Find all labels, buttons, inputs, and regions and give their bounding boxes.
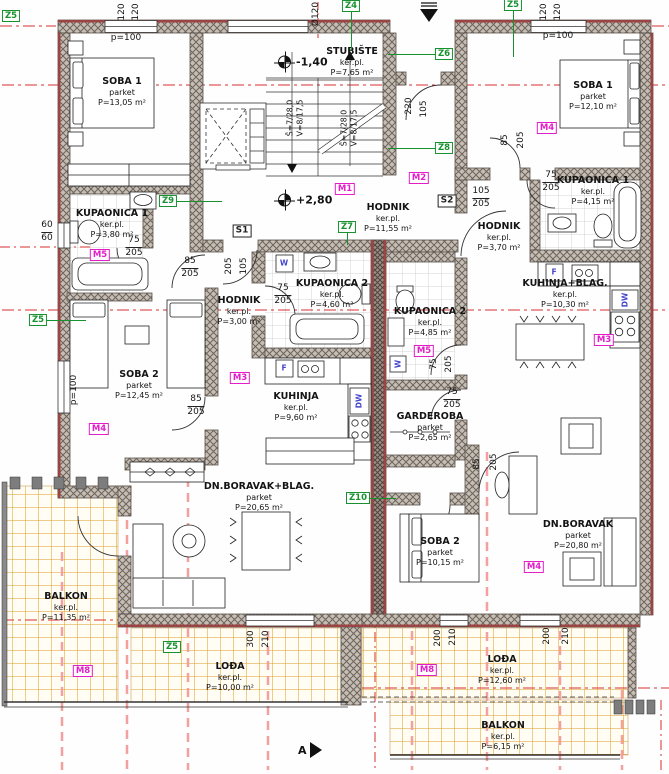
stair-note: V=8/17,5	[350, 110, 359, 147]
room-area: P=13,05 m²	[98, 98, 146, 108]
room-label-kupaonica2-right: KUPAONICA 2ker.pl.P=4,85 m²	[394, 306, 466, 338]
dim-width: 75	[277, 284, 288, 294]
section-letter: A	[298, 744, 307, 757]
dimension-label: 210	[448, 628, 458, 645]
opening-tag-z6: Z6	[435, 48, 453, 60]
section-marker: A	[298, 742, 322, 758]
material-tag-m5: M5	[90, 249, 110, 261]
room-label-balkon-left: BALKONker.pl.P=11,35 m²	[42, 591, 90, 623]
room-area: P=4,15 m²	[557, 197, 629, 207]
material-tag-m3: M3	[230, 372, 250, 384]
dim-width: 60	[41, 221, 52, 231]
room-area: P=11,55 m²	[364, 224, 412, 234]
floor-plan: SOBA 1parketP=13,05 m²KUPAONICA 1ker.pl.…	[0, 0, 669, 774]
stair-note: Š=7/28,0	[340, 110, 349, 146]
dim-width: 75	[128, 236, 139, 246]
dimension-label: 210	[261, 630, 271, 647]
dim-height: 205	[274, 297, 291, 307]
room-name: BALKON	[42, 591, 90, 603]
room-area: P=9,60 m²	[273, 413, 318, 423]
room-name: HODNIK	[478, 221, 521, 233]
room-floor: parket	[569, 92, 617, 102]
dim-height: 60	[41, 234, 52, 244]
material-tag-m5: M5	[414, 345, 434, 357]
tag-leader	[176, 201, 222, 202]
dimension-label: 120	[539, 3, 549, 20]
parapet-note: p=100	[111, 33, 141, 43]
room-area: P=12,60 m²	[478, 676, 526, 686]
dim-height: 205	[181, 270, 198, 280]
room-label-dnevni-left: DN.BORAVAK+BLAG.parketP=20,65 m²	[204, 481, 314, 513]
dim-height: 205	[443, 401, 460, 411]
room-name: KUPAONICA 1	[557, 175, 629, 187]
room-area: P=4,60 m²	[296, 300, 368, 310]
tag-leader	[513, 11, 514, 57]
room-floor: ker.pl.	[557, 187, 629, 197]
room-floor: parket	[204, 493, 314, 503]
room-name: SOBA 1	[98, 76, 146, 88]
room-area: P=10,00 m²	[206, 683, 254, 693]
dim-width: 85	[190, 395, 201, 405]
dimension-label: 85	[500, 134, 510, 145]
opening-tag-z4: Z4	[342, 0, 360, 12]
room-floor: parket	[98, 88, 146, 98]
dimension-label: 120	[131, 3, 141, 20]
room-label-kuhinja-left: KUHINJAker.pl.P=9,60 m²	[273, 391, 318, 423]
room-floor: ker.pl.	[296, 290, 368, 300]
level-marker: +2,80	[278, 194, 332, 207]
apartment-tag-s1: S1	[233, 225, 252, 238]
room-label-dnevni-right: DN.BORAVAKparketP=20,80 m²	[543, 519, 613, 551]
material-tag-m8: M8	[73, 665, 93, 677]
tag-leader	[388, 54, 436, 55]
room-floor: ker.pl.	[218, 307, 261, 317]
room-name: KUPAONICA 2	[394, 306, 466, 318]
room-area: P=10,30 m²	[522, 300, 607, 310]
dimension-label: 85	[472, 458, 482, 469]
room-floor: ker.pl.	[364, 214, 412, 224]
appliance-label: F	[281, 364, 286, 373]
dim-width: 75	[545, 171, 556, 181]
opening-tag-z10: Z10	[346, 492, 370, 504]
material-tag-m1: M1	[335, 183, 355, 195]
parapet-note: p=100	[543, 31, 573, 41]
dimension-label: 205	[489, 453, 499, 470]
room-area: P=20,65 m²	[204, 503, 314, 513]
room-name: SOBA 2	[416, 536, 464, 548]
room-floor: parket	[416, 548, 464, 558]
opening-tag-z5: Z5	[163, 641, 181, 653]
room-label-kupaonica1-right: KUPAONICA 1ker.pl.P=4,15 m²	[557, 175, 629, 207]
room-area: P=6,15 m²	[481, 742, 525, 752]
room-floor: parket	[397, 423, 464, 433]
room-name: LOĐA	[206, 661, 254, 673]
room-name: KUHINJA	[273, 391, 318, 403]
level-value: +2,80	[296, 194, 332, 207]
room-floor: ker.pl.	[42, 603, 90, 613]
room-floor: ker.pl.	[478, 233, 521, 243]
room-name: BALKON	[481, 720, 525, 732]
dimension-label: 75	[429, 358, 439, 369]
room-name: KUPAONICA 1	[76, 208, 148, 220]
opening-tag-z5: Z5	[504, 0, 522, 11]
appliance-label: DW	[355, 394, 364, 409]
room-floor: ker.pl.	[481, 732, 525, 742]
room-floor: ker.pl.	[206, 673, 254, 683]
dimension-label: 205	[224, 257, 234, 274]
room-name: KUPAONICA 2	[296, 278, 368, 290]
dimension-label: 300	[246, 630, 256, 647]
material-tag-m4: M4	[89, 423, 109, 435]
opening-tag-z5: Z5	[29, 314, 47, 326]
room-area: P=20,80 m²	[543, 541, 613, 551]
room-floor: ker.pl.	[522, 290, 607, 300]
door-dimension: 75205	[542, 171, 559, 194]
section-arrow-icon	[310, 742, 322, 758]
room-name: DN.BORAVAK+BLAG.	[204, 481, 314, 493]
dim-width: 75	[446, 388, 457, 398]
room-area: P=12,10 m²	[569, 102, 617, 112]
room-area: P=12,45 m²	[115, 391, 163, 401]
room-label-soba2-right: SOBA 2parketP=10,15 m²	[416, 536, 464, 568]
room-area: P=7,65 m²	[326, 68, 378, 78]
tag-leader	[366, 498, 396, 499]
room-area: P=11,35 m²	[42, 613, 90, 623]
room-label-soba2-left: SOBA 2parketP=12,45 m²	[115, 369, 163, 401]
room-label-stubiste: STUBIŠTEker.pl.P=7,65 m²	[326, 46, 378, 78]
dim-width: 105	[472, 187, 489, 197]
material-tag-m4: M4	[537, 122, 557, 134]
door-dimension: 6060	[41, 221, 52, 244]
room-name: GARDEROBA	[397, 411, 464, 423]
room-label-hodnik-zajednicki: HODNIKker.pl.P=11,55 m²	[364, 202, 412, 234]
room-area: P=3,00 m²	[218, 317, 261, 327]
room-label-kupaonica2-left: KUPAONICA 2ker.pl.P=4,60 m²	[296, 278, 368, 310]
appliance-label: DW	[621, 293, 630, 308]
label-layer: SOBA 1parketP=13,05 m²KUPAONICA 1ker.pl.…	[0, 0, 669, 774]
material-tag-m4: M4	[524, 561, 544, 573]
door-dimension: 75205	[274, 284, 291, 307]
opening-tag-z8: Z8	[435, 142, 453, 154]
stair-note: Š=7/28,0	[286, 100, 295, 136]
room-name: KUHINJA+BLAG.	[522, 278, 607, 290]
level-symbol-icon	[278, 194, 291, 207]
material-tag-m8: M8	[417, 664, 437, 676]
room-name: LOĐA	[478, 654, 526, 666]
room-floor: ker.pl.	[273, 403, 318, 413]
dimension-label: 120	[117, 3, 127, 20]
room-area: P=4,85 m²	[394, 328, 466, 338]
room-area: P=3,70 m²	[478, 243, 521, 253]
door-dimension: 75205	[443, 388, 460, 411]
tag-leader	[347, 233, 348, 245]
room-area: P=2,65 m²	[397, 433, 464, 443]
dimension-label: 105	[239, 257, 249, 274]
room-label-loda-right: LOĐAker.pl.P=12,60 m²	[478, 654, 526, 686]
room-label-soba1-left: SOBA 1parketP=13,05 m²	[98, 76, 146, 108]
room-label-garderoba-right: GARDEROBAparketP=2,65 m²	[397, 411, 464, 443]
room-label-hodnik-left: HODNIKker.pl.P=3,00 m²	[218, 295, 261, 327]
room-area: P=10,15 m²	[416, 558, 464, 568]
stair-note: V=8/17,5	[296, 100, 305, 137]
dim-height: 205	[125, 249, 142, 259]
tag-leader	[351, 12, 352, 50]
door-dimension: 75205	[125, 236, 142, 259]
room-name: STUBIŠTE	[326, 46, 378, 58]
dim-height: 205	[472, 200, 489, 210]
room-floor: parket	[115, 381, 163, 391]
level-marker: -1,40	[278, 56, 328, 69]
room-floor: ker.pl.	[326, 58, 378, 68]
dimension-label: 200	[542, 627, 552, 644]
door-dimension: 105205	[472, 187, 489, 210]
dim-width: 85	[184, 257, 195, 267]
tag-leader	[388, 148, 436, 149]
appliance-label: W	[280, 259, 288, 268]
apartment-tag-s2: S2	[438, 195, 457, 208]
level-symbol-icon	[278, 56, 291, 69]
room-floor: ker.pl.	[394, 318, 466, 328]
opening-tag-z5: Z5	[2, 10, 20, 22]
opening-tag-z7: Z7	[338, 221, 356, 233]
room-label-loda-left: LOĐAker.pl.P=10,00 m²	[206, 661, 254, 693]
dimension-label: 120	[553, 3, 563, 20]
dimension-label: Ø120	[311, 2, 321, 26]
appliance-label: W	[394, 360, 403, 368]
room-label-balkon-right: BALKONker.pl.P=6,15 m²	[481, 720, 525, 752]
room-name: SOBA 1	[569, 80, 617, 92]
room-name: HODNIK	[218, 295, 261, 307]
dimension-label: p=100	[69, 375, 79, 405]
dimension-label: 200	[433, 629, 443, 646]
tag-leader	[46, 320, 86, 321]
room-label-hodnik-right: HODNIKker.pl.P=3,70 m²	[478, 221, 521, 253]
dimension-label: 205	[444, 355, 454, 372]
room-label-kuhinja-blag-right: KUHINJA+BLAG.ker.pl.P=10,30 m²	[522, 278, 607, 310]
dimension-label: 205	[516, 131, 526, 148]
dimension-label: 220	[404, 97, 414, 114]
appliance-label: F	[551, 268, 556, 277]
material-tag-m2: M2	[409, 172, 429, 184]
room-name: SOBA 2	[115, 369, 163, 381]
room-name: DN.BORAVAK	[543, 519, 613, 531]
room-name: HODNIK	[364, 202, 412, 214]
dim-height: 205	[187, 408, 204, 418]
room-floor: ker.pl.	[76, 220, 148, 230]
dimension-label: 210	[561, 627, 571, 644]
room-label-soba1-right: SOBA 1parketP=12,10 m²	[569, 80, 617, 112]
dim-height: 205	[542, 184, 559, 194]
opening-tag-z9: Z9	[159, 195, 177, 207]
material-tag-m3: M3	[594, 334, 614, 346]
dimension-label: 105	[419, 100, 429, 117]
room-floor: ker.pl.	[478, 666, 526, 676]
door-dimension: 85205	[187, 395, 204, 418]
room-floor: parket	[543, 531, 613, 541]
level-value: -1,40	[296, 56, 328, 69]
door-dimension: 85205	[181, 257, 198, 280]
